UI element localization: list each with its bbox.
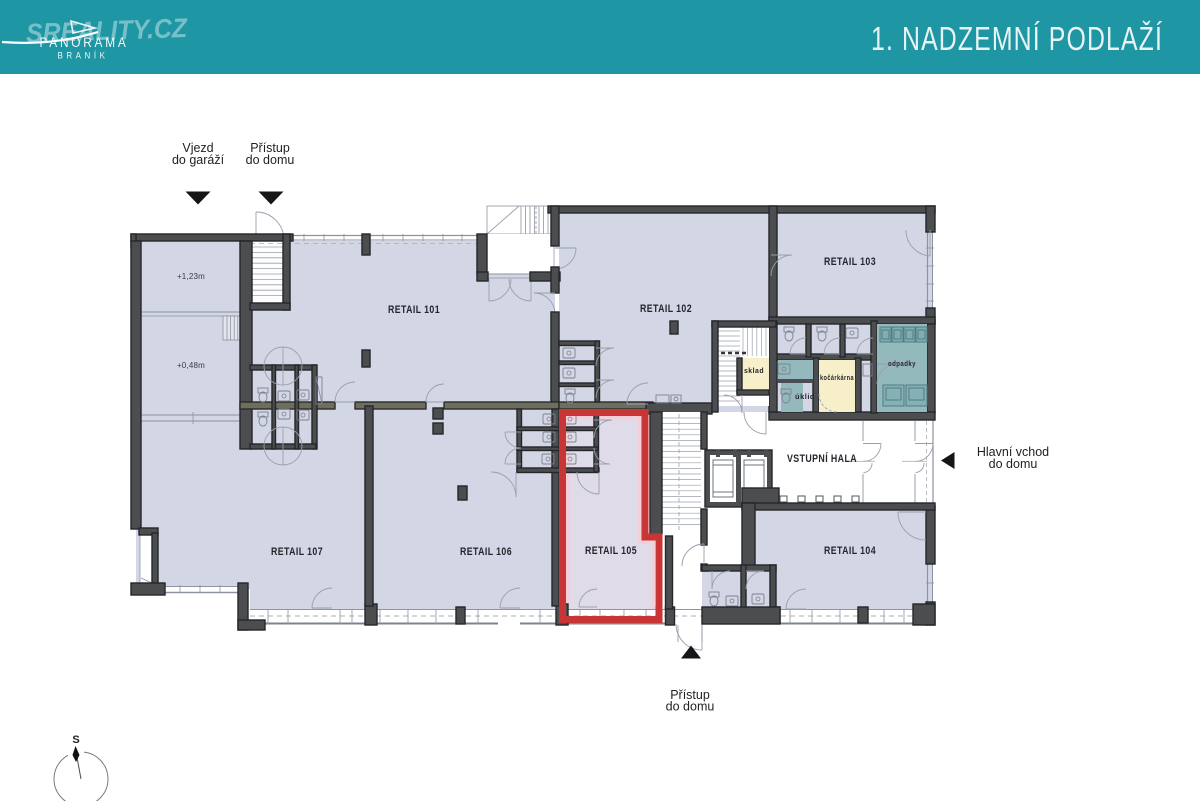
svg-text:kočárkárna: kočárkárna <box>820 375 854 382</box>
svg-text:S: S <box>72 734 79 746</box>
svg-text:do domu: do domu <box>246 153 295 167</box>
svg-text:odpadky: odpadky <box>888 361 916 368</box>
svg-text:do garáží: do garáží <box>172 153 225 167</box>
svg-text:RETAIL 106: RETAIL 106 <box>460 546 512 558</box>
svg-text:úklid: úklid <box>795 394 815 401</box>
svg-text:1. NADZEMNÍ PODLAŽÍ: 1. NADZEMNÍ PODLAŽÍ <box>871 20 1163 57</box>
svg-text:do domu: do domu <box>989 457 1038 471</box>
svg-text:RETAIL 105: RETAIL 105 <box>585 545 637 557</box>
svg-text:RETAIL 104: RETAIL 104 <box>824 545 876 557</box>
svg-text:do domu: do domu <box>666 700 715 714</box>
svg-text:RETAIL 107: RETAIL 107 <box>271 546 323 558</box>
svg-text:+0,48m: +0,48m <box>177 361 205 370</box>
svg-text:VSTUPNÍ HALA: VSTUPNÍ HALA <box>787 452 857 465</box>
svg-text:sklad: sklad <box>744 368 764 375</box>
svg-text:RETAIL 101: RETAIL 101 <box>388 304 440 316</box>
svg-text:+1,23m: +1,23m <box>177 272 205 281</box>
svg-text:BRANÍK: BRANÍK <box>58 51 109 61</box>
svg-text:RETAIL 102: RETAIL 102 <box>640 303 692 315</box>
svg-text:RETAIL 103: RETAIL 103 <box>824 256 876 268</box>
svg-text:PANORAMA: PANORAMA <box>40 35 129 50</box>
